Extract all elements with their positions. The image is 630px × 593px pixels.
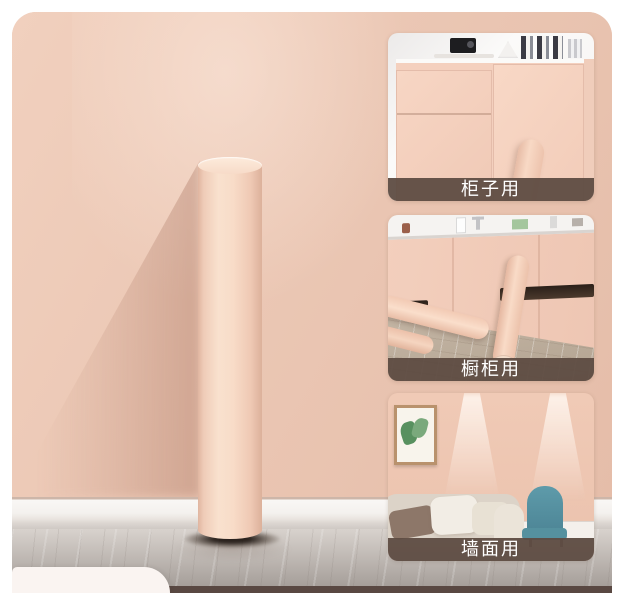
roll-top-cap bbox=[198, 157, 262, 174]
green-box-decor bbox=[512, 219, 528, 230]
roll-body bbox=[198, 165, 262, 539]
thumbnail-label-cabinet: 柜子用 bbox=[388, 178, 594, 201]
thumbnail-label-kitchen: 橱柜用 bbox=[388, 358, 594, 381]
leaf-decor bbox=[411, 417, 429, 440]
wallpaper-roll bbox=[198, 157, 262, 539]
faucet-spout-decor bbox=[472, 217, 484, 220]
next-section-card-corner bbox=[12, 567, 170, 593]
product-detail-page: 柜子用 橱柜用 bbox=[0, 0, 630, 593]
sofa-armrest bbox=[494, 504, 524, 539]
thumbnail-kitchen-cabinet-use[interactable]: 橱柜用 bbox=[388, 215, 594, 381]
bottle-decor bbox=[456, 217, 466, 233]
jar-decor bbox=[572, 218, 583, 226]
thumbnail-wall-use[interactable]: 墙面用 bbox=[388, 393, 594, 561]
thumbnail-cabinet-use[interactable]: 柜子用 bbox=[388, 33, 594, 201]
botanical-picture-frame bbox=[394, 405, 437, 465]
product-photo-card: 柜子用 橱柜用 bbox=[12, 12, 612, 593]
thumbnail-label-wall: 墙面用 bbox=[388, 538, 594, 561]
bottle-decor bbox=[402, 223, 410, 233]
books-decor-small bbox=[568, 39, 582, 58]
glass-decor bbox=[550, 216, 557, 228]
tray-decor bbox=[434, 54, 494, 58]
black-device-decor bbox=[450, 38, 476, 53]
books-decor bbox=[521, 36, 563, 59]
